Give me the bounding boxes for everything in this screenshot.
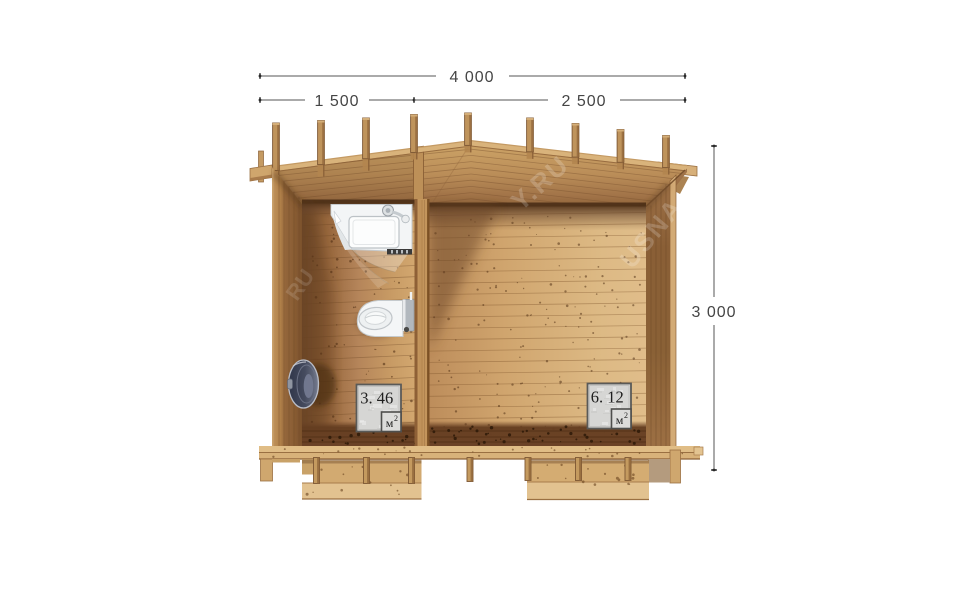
svg-text:м: м bbox=[616, 413, 624, 427]
svg-text:3. 46: 3. 46 bbox=[360, 389, 393, 408]
svg-text:6. 12: 6. 12 bbox=[591, 388, 624, 407]
svg-text:м: м bbox=[386, 416, 394, 430]
svg-text:1 500: 1 500 bbox=[314, 93, 359, 110]
svg-text:2: 2 bbox=[624, 411, 628, 420]
svg-text:2: 2 bbox=[394, 414, 398, 423]
svg-text:4 000: 4 000 bbox=[449, 69, 494, 86]
svg-text:2 500: 2 500 bbox=[561, 93, 606, 110]
svg-text:3 000: 3 000 bbox=[691, 304, 736, 321]
